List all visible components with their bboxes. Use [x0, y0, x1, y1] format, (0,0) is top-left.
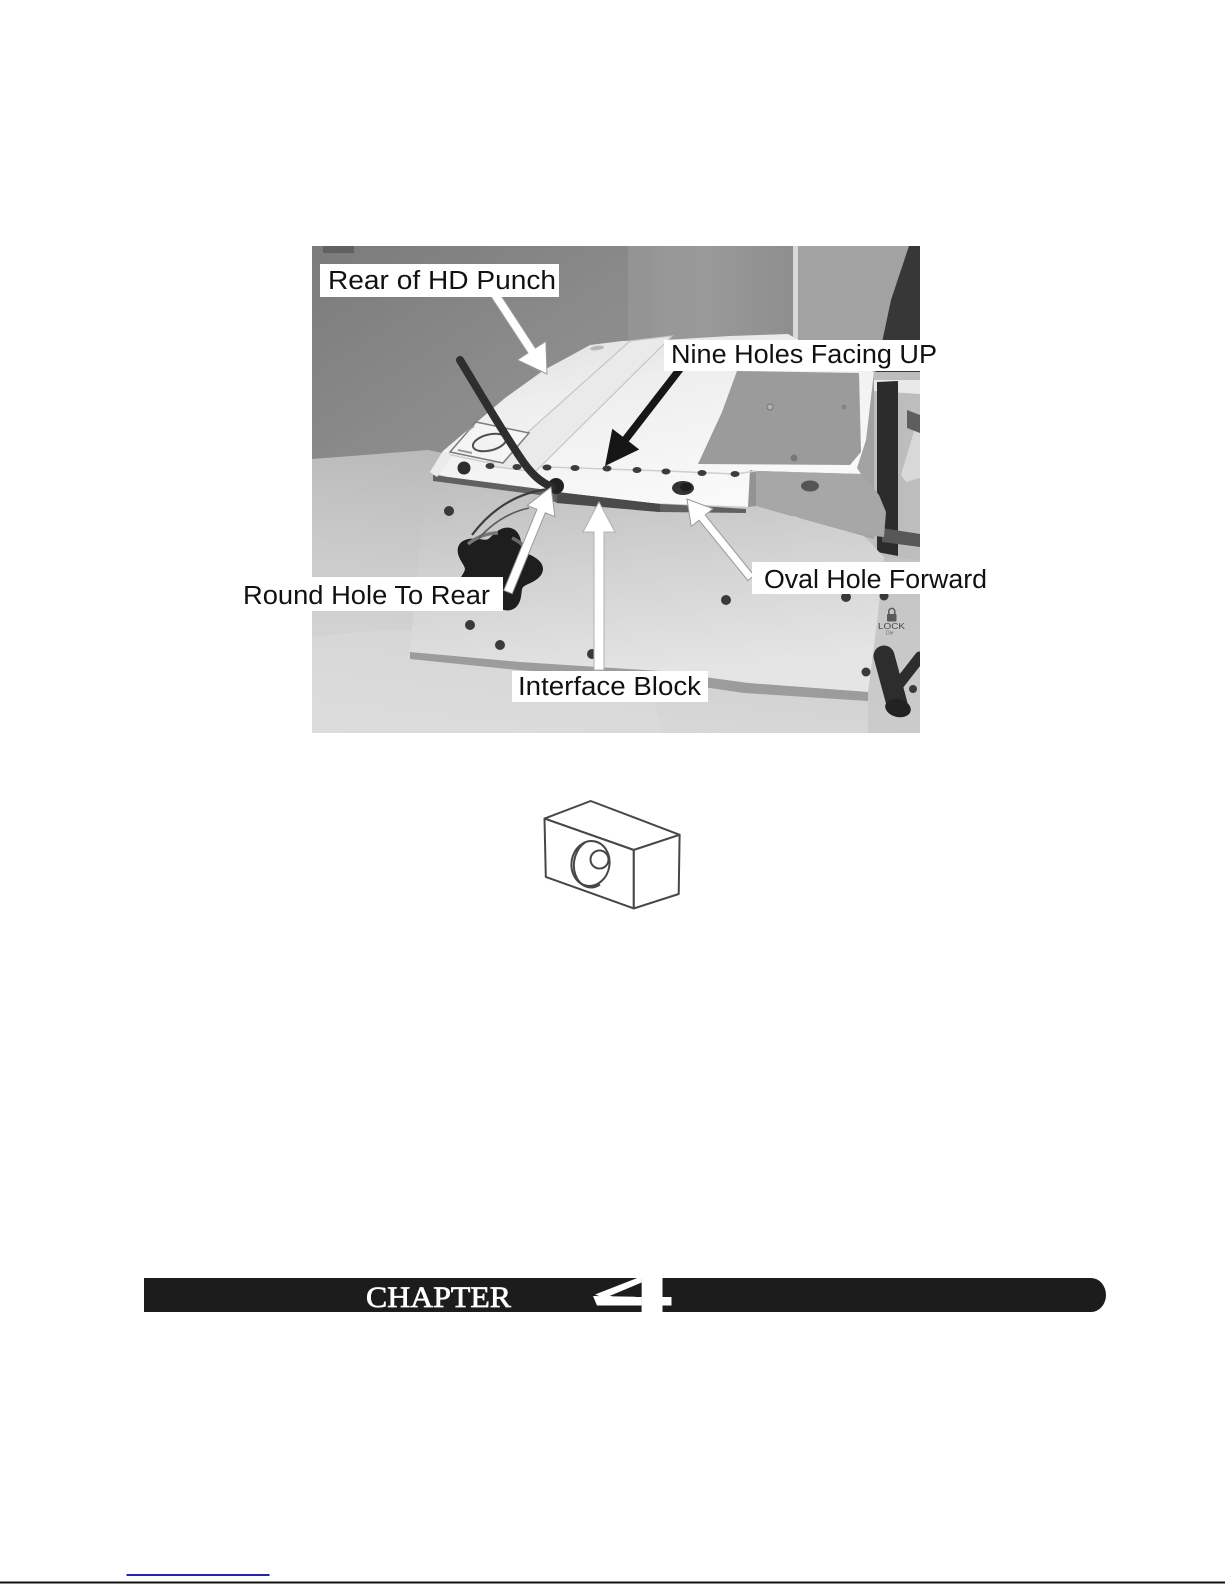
- svg-text:Rear of HD Punch: Rear of HD Punch: [328, 267, 556, 295]
- svg-text:Round Hole To Rear: Round Hole To Rear: [243, 582, 491, 610]
- svg-text:Oval Hole Forward: Oval Hole Forward: [764, 566, 987, 594]
- svg-text:Nine Holes Facing UP: Nine Holes Facing UP: [671, 341, 937, 369]
- svg-text:Die: Die: [886, 631, 894, 637]
- svg-text:Interface Block: Interface Block: [518, 673, 701, 701]
- svg-text:CHAPTER: CHAPTER: [366, 1281, 511, 1314]
